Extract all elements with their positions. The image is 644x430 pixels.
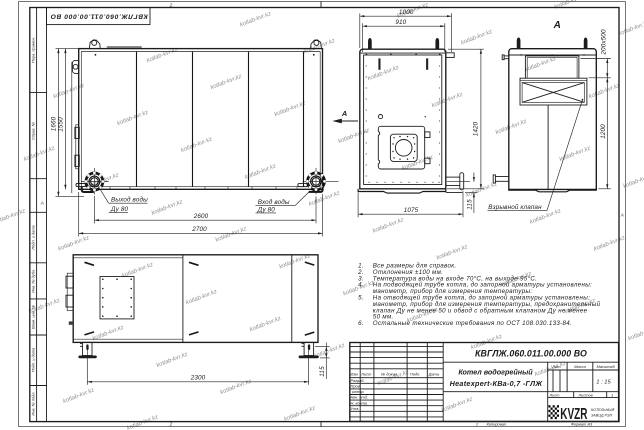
svg-text:Лист: Лист — [549, 393, 561, 398]
svg-text:200х500: 200х500 — [601, 29, 608, 56]
svg-text:1: 1 — [611, 393, 613, 398]
svg-text:Дата: Дата — [428, 372, 440, 377]
svg-text:2700: 2700 — [191, 226, 207, 233]
svg-text:Ду 80: Ду 80 — [257, 207, 276, 214]
svg-text:А: А — [620, 213, 624, 218]
svg-text:1075: 1075 — [404, 207, 419, 214]
svg-text:Копировал: Копировал — [487, 422, 507, 427]
svg-text:А: А — [553, 20, 561, 31]
svg-text:1 : 15: 1 : 15 — [596, 380, 611, 386]
svg-text:2: 2 — [169, 421, 173, 426]
svg-text:Нач. отд.: Нач. отд. — [351, 395, 368, 400]
svg-text:А: А — [40, 201, 44, 206]
svg-text:Вход воды: Вход воды — [258, 198, 290, 206]
svg-text:Heatexpert-КВа-0,7 -ГЛЖ: Heatexpert-КВа-0,7 -ГЛЖ — [450, 379, 543, 388]
svg-text:Подп.: Подп. — [410, 372, 420, 377]
svg-text:Лист: Лист — [360, 372, 372, 377]
svg-text:Изм: Изм — [351, 372, 359, 377]
svg-text:Выход воды: Выход воды — [111, 196, 148, 204]
svg-text:ЗАВОД РЭП: ЗАВОД РЭП — [591, 413, 612, 417]
svg-text:Разраб.: Разраб. — [351, 378, 365, 383]
svg-text:Котел водогрейный: Котел водогрейный — [458, 368, 533, 377]
svg-text:Перв. примен.: Перв. примен. — [30, 37, 35, 63]
svg-text:Инв. № дубл.: Инв. № дубл. — [30, 269, 35, 293]
svg-text:Подп. и дата: Подп. и дата — [30, 347, 35, 372]
svg-text:Подп. и дата: Подп. и дата — [30, 224, 35, 249]
svg-text:Утв.: Утв. — [351, 406, 360, 411]
svg-text:Остальные технические требован: Остальные технические требования по ОСТ … — [373, 320, 572, 327]
svg-text:5.: 5. — [358, 295, 364, 302]
svg-text:Листов: Листов — [578, 393, 593, 398]
svg-text:Ду 80: Ду 80 — [110, 206, 129, 213]
svg-text:115: 115 — [319, 366, 326, 377]
svg-text:1000: 1000 — [399, 9, 414, 16]
svg-text:А: А — [341, 109, 347, 118]
svg-text:6.: 6. — [358, 320, 364, 327]
svg-text:Н. контр.: Н. контр. — [351, 400, 369, 405]
svg-text:1: 1 — [476, 422, 478, 427]
svg-text:1550: 1550 — [58, 117, 65, 132]
svg-text:1420: 1420 — [473, 121, 480, 136]
svg-text:2300: 2300 — [190, 375, 206, 382]
svg-text:Формат А3: Формат А3 — [571, 422, 593, 427]
svg-text:1200: 1200 — [600, 124, 607, 139]
svg-text:Справ. №: Справ. № — [30, 121, 35, 139]
svg-text:KVZR: KVZR — [560, 406, 587, 423]
svg-text:2600: 2600 — [193, 213, 209, 220]
svg-text:Инв. № подл.: Инв. № подл. — [30, 391, 35, 415]
svg-text:Лит.: Лит. — [551, 364, 561, 369]
svg-text:4.: 4. — [358, 282, 364, 289]
svg-text:Пров.: Пров. — [351, 384, 361, 389]
svg-text:1660: 1660 — [51, 116, 58, 131]
svg-text:115: 115 — [467, 199, 474, 210]
svg-text:КОТЕЛЬНЫЙ: КОТЕЛЬНЫЙ — [591, 408, 615, 412]
svg-text:клапан Ду не менее 50 и обвод: клапан Ду не менее 50 и обвод с обратным… — [373, 307, 588, 314]
svg-text:2: 2 — [169, 2, 173, 7]
svg-text:контр.: контр. — [352, 389, 365, 394]
svg-text:КВГЛЖ.060.011.00.000 ВО: КВГЛЖ.060.011.00.000 ВО — [50, 12, 148, 19]
svg-text:Масса: Масса — [574, 364, 586, 369]
svg-text:КВГЛЖ.060.011.00.000 ВО: КВГЛЖ.060.011.00.000 ВО — [475, 348, 587, 358]
svg-text:Взам. инв. №: Взам. инв. № — [30, 304, 35, 329]
svg-text:910: 910 — [395, 19, 406, 26]
svg-text:Взрывной клапан: Взрывной клапан — [488, 203, 542, 211]
svg-text:Масштаб: Масштаб — [597, 364, 616, 369]
svg-text:№ докум.: № докум. — [381, 372, 398, 377]
